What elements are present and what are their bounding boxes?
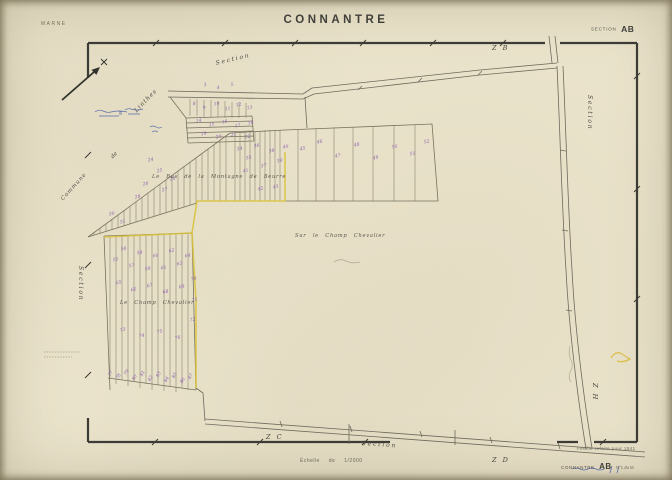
parcel-number: 47 [335, 155, 342, 161]
parcel-number: 56 [121, 248, 128, 254]
parcel-number: 24 [148, 159, 155, 165]
parcel-number: 15 [209, 124, 216, 130]
parcel-number: 8 [193, 103, 197, 108]
parcel-number: 16 [222, 121, 229, 127]
zone-zc-label: Z C [266, 433, 284, 441]
parcel-number: 30 [109, 213, 116, 219]
parcel-numbers-layer: 3458910111213141516171819202122242526272… [0, 0, 672, 480]
parcel-number: 76 [175, 337, 182, 343]
parcel-number: 80 [132, 375, 139, 382]
revision-note: Feuille refaite pour 1941 [577, 446, 636, 451]
parcel-number: 63 [177, 263, 184, 269]
parcel-number: 20 [216, 136, 223, 142]
parcel-number: 58 [137, 252, 144, 258]
parcel-number: 65 [116, 282, 123, 288]
parcel-number: 13 [247, 107, 254, 113]
parcel-number: 19 [201, 133, 208, 139]
parcel-number: 46 [317, 141, 324, 147]
parcel-number: 38 [269, 150, 276, 156]
parcel-number: 57 [129, 265, 136, 271]
cadastral-map-sheet: MARNE CONNANTRE SECTION AB Section Z B S… [0, 0, 672, 480]
parcel-number: 55 [113, 259, 120, 265]
parcel-number: 52 [424, 141, 431, 147]
parcel-number: 26 [143, 183, 150, 189]
parcel-number: 82 [148, 376, 155, 383]
zone-zb-label: Z B [492, 44, 509, 52]
section-label-left: Section [77, 266, 84, 301]
sheet-detail: N°1 du M [616, 465, 634, 470]
parcel-number: 35 [246, 157, 253, 163]
parcel-number: 28 [135, 196, 142, 202]
parcel-number: 68 [163, 291, 170, 297]
parcel-number: 73 [120, 329, 127, 335]
parcel-number: 5 [231, 84, 235, 89]
sheet-section-header: SECTION AB [591, 19, 634, 37]
parcel-number: 3 [204, 84, 208, 89]
parcel-number: 78 [116, 374, 123, 381]
parcel-number: 22 [245, 136, 252, 142]
zone-zh-label: Z H [591, 383, 599, 401]
parcel-number: 40 [283, 146, 290, 152]
parcel-number: 17 [235, 125, 242, 131]
section-code: AB [621, 24, 634, 34]
zone-zd-label: Z D [492, 456, 510, 464]
parcel-number: 39 [277, 160, 284, 166]
parcel-number: 79 [124, 370, 131, 377]
parcel-number: 59 [145, 268, 152, 274]
parcel-number: 60 [153, 255, 160, 261]
parcel-number: 34 [237, 148, 244, 154]
parcel-number: 11 [225, 108, 232, 114]
parcel-number: 84 [164, 377, 171, 384]
lieu-dit-montagne-de-beurre: Le Bas de la Montagne de Beurre [152, 174, 286, 180]
parcel-number: 31 [120, 221, 127, 227]
parcel-number: 36 [254, 145, 261, 151]
parcel-number: 77 [108, 371, 115, 378]
parcel-number: 42 [258, 188, 265, 194]
parcel-number: 81 [140, 371, 147, 378]
section-label-right: Section [586, 95, 593, 130]
parcel-number: 18 [248, 122, 255, 128]
parcel-number: 10 [214, 103, 221, 109]
parcel-number: 66 [131, 289, 138, 295]
lieu-dit-sur-le-champ-chevalier: Sur le Champ Chevalier [295, 233, 385, 239]
parcel-number: 9 [203, 107, 207, 112]
parcel-number: 45 [300, 148, 307, 154]
parcel-number: 14 [196, 120, 203, 126]
parcel-number: 4 [217, 87, 221, 92]
parcel-number: 43 [273, 186, 280, 192]
lieu-dit-le-champ-chevalier: Le Champ Chevalier [120, 300, 194, 306]
sheet-section: AB [599, 462, 612, 471]
parcel-number: 50 [392, 146, 399, 152]
parcel-number: 70 [191, 278, 198, 284]
parcel-number: 69 [179, 286, 186, 292]
parcel-number: 51 [410, 153, 417, 159]
parcel-number: 85 [172, 373, 179, 380]
parcel-number: 64 [185, 255, 192, 261]
parcel-number: 12 [236, 104, 243, 110]
parcel-number: 74 [139, 335, 146, 341]
parcel-number: 62 [169, 250, 176, 256]
parcel-number: 67 [147, 285, 154, 291]
parcel-number: 21 [231, 134, 238, 140]
scale-label: Échelle de 1/2000 [300, 458, 363, 464]
map-title: CONNANTRE [0, 14, 672, 26]
parcel-number: 49 [373, 157, 380, 163]
parcel-number: 61 [161, 267, 168, 273]
section-word: SECTION [591, 27, 617, 32]
parcel-number: 37 [261, 165, 268, 171]
parcel-number: 86 [180, 378, 187, 385]
sheet-commune: CONNANTRE [561, 465, 595, 470]
parcel-number: 83 [156, 372, 163, 379]
sheet-identifier: CONNANTRE AB N°1 du M [561, 456, 634, 474]
parcel-number: 87 [188, 374, 195, 381]
parcel-number: 75 [157, 331, 164, 337]
parcel-number: 72 [190, 319, 197, 325]
parcel-number: 27 [162, 189, 169, 195]
parcel-number: 48 [354, 144, 361, 150]
